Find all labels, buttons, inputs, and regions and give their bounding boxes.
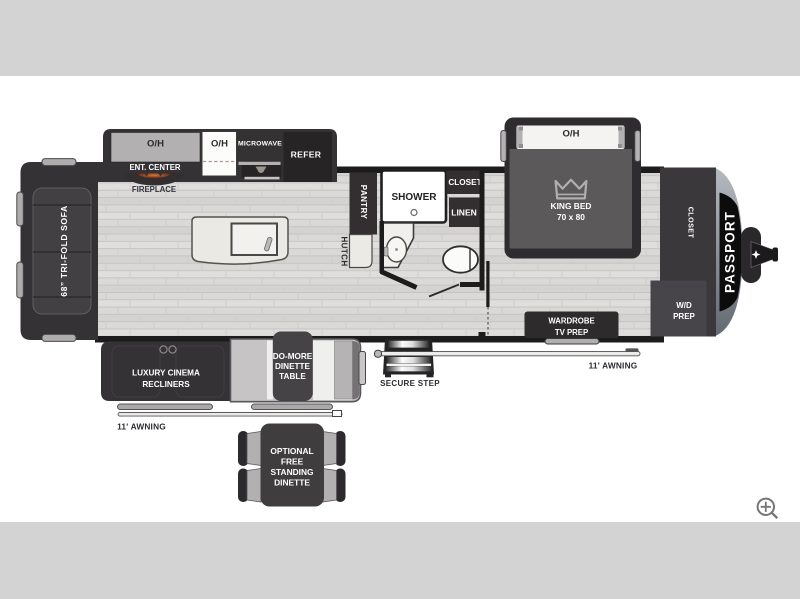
svg-text:W/D: W/D [676, 301, 692, 310]
svg-text:11' AWNING: 11' AWNING [589, 361, 638, 371]
svg-text:FIREPLACE: FIREPLACE [132, 185, 176, 194]
svg-text:WARDROBE: WARDROBE [548, 316, 594, 325]
svg-text:RECLINERS: RECLINERS [142, 380, 190, 389]
svg-text:11' AWNING: 11' AWNING [117, 422, 166, 432]
svg-text:PASSPORT: PASSPORT [723, 211, 738, 293]
svg-text:CLOSET: CLOSET [448, 178, 481, 187]
svg-text:O/H: O/H [211, 138, 228, 149]
svg-text:HUTCH: HUTCH [340, 237, 349, 267]
svg-text:STANDING: STANDING [270, 467, 313, 477]
svg-text:REFER: REFER [291, 150, 322, 160]
svg-text:OPTIONAL: OPTIONAL [270, 446, 313, 456]
svg-text:LINEN: LINEN [451, 208, 477, 218]
svg-text:LUXURY CINEMA: LUXURY CINEMA [132, 369, 200, 378]
svg-text:70 x 80: 70 x 80 [557, 212, 585, 222]
svg-text:DINETTE: DINETTE [275, 362, 311, 371]
svg-text:O/H: O/H [563, 129, 580, 140]
svg-text:SECURE STEP: SECURE STEP [380, 379, 440, 388]
svg-text:DO-MORE: DO-MORE [273, 352, 313, 361]
svg-text:MICROWAVE: MICROWAVE [238, 140, 282, 147]
svg-text:68” TRI-FOLD SOFA: 68” TRI-FOLD SOFA [59, 205, 69, 296]
svg-text:DINETTE: DINETTE [274, 478, 310, 488]
svg-text:SHOWER: SHOWER [392, 192, 438, 203]
svg-text:PANTRY: PANTRY [359, 185, 368, 220]
svg-text:KING BED: KING BED [551, 201, 592, 211]
svg-text:O/H: O/H [147, 138, 164, 149]
svg-text:FREE: FREE [281, 457, 304, 467]
svg-text:PREP: PREP [673, 312, 695, 321]
svg-text:ENT. CENTER: ENT. CENTER [129, 163, 180, 172]
svg-text:CLOSET: CLOSET [687, 207, 696, 239]
svg-text:TABLE: TABLE [279, 372, 306, 381]
svg-text:TV PREP: TV PREP [555, 328, 588, 337]
